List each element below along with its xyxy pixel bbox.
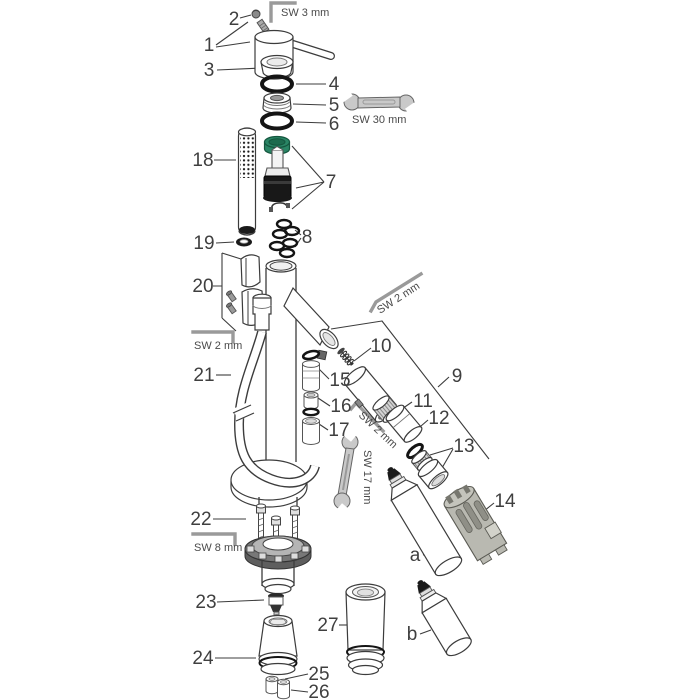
- callout-27: 27: [317, 615, 338, 636]
- callout-9: 9: [452, 366, 463, 387]
- callout-21: 21: [193, 365, 214, 386]
- callout-23: 23: [195, 592, 216, 613]
- callout-4: 4: [329, 74, 340, 95]
- part-valve-cup: [259, 616, 297, 675]
- part-spacer-ring: [261, 56, 293, 78]
- part-seal-ring: [236, 238, 252, 247]
- hex-key-sw2-left-label: SW 2 mm: [194, 340, 242, 352]
- wrench-sw30-label: SW 30 mm: [352, 114, 406, 126]
- callout-3: 3: [204, 60, 215, 81]
- hex-key-sw2-left: SW 2 mm: [193, 332, 242, 352]
- part-small-inserts: [266, 676, 290, 699]
- part-spout-screw: [317, 347, 356, 368]
- hex-key-sw2-spout: SW 2 mm: [371, 274, 422, 317]
- callout-19: 19: [193, 233, 214, 254]
- callout-16: 16: [330, 396, 351, 417]
- callout-14: 14: [494, 491, 516, 512]
- part-sleeve: [346, 584, 385, 675]
- callout-24: 24: [192, 648, 214, 669]
- exploded-diagram-canvas: SW 3 mm SW 30 mm SW 2 mm SW 2 mm SW 2 mm…: [0, 0, 700, 700]
- callout-15: 15: [329, 370, 350, 391]
- callout-1: 1: [204, 35, 215, 56]
- part-handshower: [239, 128, 256, 235]
- hex-key-sw3: SW 3 mm: [271, 3, 329, 21]
- callout-5: 5: [329, 95, 340, 116]
- part-grease-tube-b: [407, 574, 474, 660]
- callout-22: 22: [190, 509, 211, 530]
- callout-20: 20: [192, 276, 213, 297]
- callout-17: 17: [328, 420, 349, 441]
- wrench-sw17-label: SW 17 mm: [361, 450, 373, 504]
- callout-2: 2: [229, 9, 240, 30]
- callout-b: b: [407, 624, 418, 645]
- part-oring-lower: [262, 114, 292, 129]
- wrench-sw30: SW 30 mm: [338, 87, 420, 126]
- callout-13: 13: [453, 436, 474, 457]
- callout-a: a: [410, 545, 421, 566]
- part-oring-set: [270, 220, 299, 257]
- callout-10: 10: [370, 336, 391, 357]
- part-handle-screw-set: [252, 10, 269, 33]
- callout-8: 8: [302, 227, 313, 248]
- callout-6: 6: [329, 114, 340, 135]
- hex-key-sw8-label: SW 8 mm: [194, 542, 242, 554]
- callout-26: 26: [308, 682, 329, 700]
- callout-18: 18: [192, 150, 213, 171]
- part-cartridge: [263, 137, 292, 213]
- hex-key-sw3-label: SW 3 mm: [281, 7, 329, 19]
- part-mounting-set: [245, 504, 311, 569]
- part-grooved-nut: [263, 93, 291, 113]
- diagram-svg: SW 3 mm SW 30 mm SW 2 mm SW 2 mm SW 2 mm…: [0, 0, 700, 700]
- callout-12: 12: [428, 408, 449, 429]
- part-outlet-stack: [302, 350, 319, 445]
- callout-7: 7: [326, 172, 337, 193]
- hex-key-sw8: SW 8 mm: [193, 534, 242, 554]
